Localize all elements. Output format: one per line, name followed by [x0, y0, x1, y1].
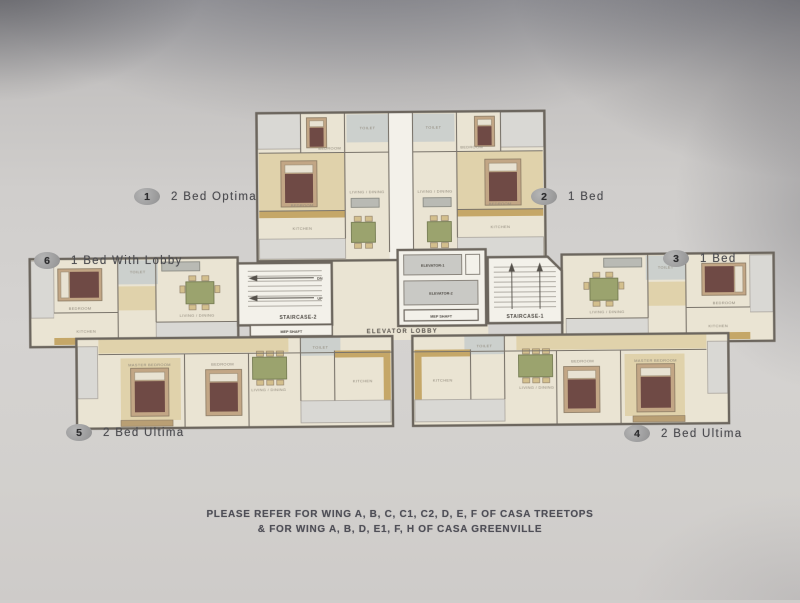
bed — [281, 161, 317, 207]
room-label-master-bedroom: MASTER BEDROOM — [128, 362, 171, 367]
dining-table — [518, 349, 552, 383]
stair-up-label: UP — [317, 297, 323, 301]
legend-label-5: 2 Bed Ultima — [103, 427, 184, 439]
room-label-living: LIVING / DINING — [418, 189, 453, 194]
bed — [485, 159, 521, 205]
stair-dn-label: DN — [317, 277, 323, 281]
room-label-bedroom: BEDROOM — [69, 306, 92, 311]
legend-item-2-bed-ultima-4: 4 2 Bed Ultima — [624, 425, 742, 442]
legend-item-2-bed-optima: 1 2 Bed Optima — [134, 188, 257, 205]
room-label-kitchen: KITCHEN — [76, 329, 96, 334]
legend-item-1-bed-3: 3 1 Bed — [663, 250, 737, 267]
room-label-living: LIVING / DINING — [180, 313, 215, 318]
elevator-core: ELEVATOR-1 ELEVATOR-2 MEP SHAFT — [398, 249, 487, 326]
bed — [702, 263, 746, 295]
legend-label-6: 1 Bed With Lobby — [71, 255, 183, 267]
room-label-bedroom: BEDROOM — [211, 361, 234, 366]
staircase-1: STAIRCASE-1 — [488, 257, 563, 324]
legend-label-4: 2 Bed Ultima — [661, 428, 742, 440]
room-label-kitchen: KITCHEN — [708, 323, 728, 328]
bed — [637, 364, 675, 412]
legend-label-2: 1 Bed — [568, 191, 605, 203]
room-label-living: LIVING / DINING — [251, 387, 286, 392]
room-label-toilet: TOILET — [477, 343, 493, 348]
room-label-kitchen: KITCHEN — [433, 378, 453, 383]
legend-label-3: 1 Bed — [700, 253, 737, 265]
top-units: BEDROOM BEDROOM BEDROOM BEDROOM KITCHEN … — [256, 111, 545, 262]
room-label-toilet: TOILET — [360, 125, 376, 130]
room-label-bedroom: BEDROOM — [489, 201, 512, 206]
room-label-living: LIVING / DINING — [519, 385, 554, 390]
dining-table — [252, 351, 286, 385]
legend-item-1-bed-2: 2 1 Bed — [531, 188, 605, 205]
mep-shaft-label: MEP SHAFT — [430, 315, 453, 319]
room-label-bedroom: BEDROOM — [460, 144, 483, 149]
legend-badge-2: 2 — [531, 188, 557, 205]
wing-left-1bed-lobby: BEDROOM KITCHEN LIVING / DINING TOILET — [30, 257, 239, 347]
bottom-wing-right-2bed-ultima: MASTER BEDROOM BEDROOM LIVING / DINING K… — [412, 333, 729, 426]
wardrobe — [633, 416, 685, 422]
staircase-2: DN UP STAIRCASE-2 MEP SHAFT — [238, 263, 333, 337]
legend-item-1-bed-with-lobby: 6 1 Bed With Lobby — [34, 252, 183, 269]
legend-badge-4: 4 — [624, 425, 650, 442]
staircase-2-label: STAIRCASE-2 — [279, 315, 316, 321]
bed — [306, 118, 326, 148]
footer-line-1: PLEASE REFER FOR WING A, B, C, C1, C2, D… — [0, 508, 800, 523]
room-label-toilet: TOILET — [130, 269, 146, 274]
staircase-1-label: STAIRCASE-1 — [506, 314, 543, 320]
room-label-kitchen: KITCHEN — [491, 224, 511, 229]
bed — [58, 269, 102, 301]
room-label-living: LIVING / DINING — [350, 189, 385, 194]
room-label-living: LIVING / DINING — [590, 309, 625, 314]
room-label-kitchen: KITCHEN — [293, 226, 313, 231]
room-label-bedroom: BEDROOM — [713, 300, 736, 305]
footer-note: PLEASE REFER FOR WING A, B, C, C1, C2, D… — [0, 508, 800, 537]
sofa — [423, 198, 451, 207]
room-label-toilet: TOILET — [313, 345, 329, 350]
bed — [131, 368, 169, 416]
legend-item-2-bed-ultima-5: 5 2 Bed Ultima — [66, 424, 184, 441]
room-label-bedroom: BEDROOM — [291, 203, 314, 208]
room-label-bedroom: BEDROOM — [318, 146, 341, 151]
elevator-lobby-label: ELEVATOR LOBBY — [367, 329, 438, 336]
bottom-wing-left-2bed-ultima: MASTER BEDROOM BEDROOM LIVING / DINING K… — [76, 336, 393, 429]
legend-badge-6: 6 — [34, 252, 60, 269]
sofa — [604, 258, 642, 267]
room-label-toilet: TOILET — [426, 125, 442, 130]
legend-label-1: 2 Bed Optima — [171, 191, 257, 203]
bed — [474, 116, 494, 146]
room-label-master-bedroom: MASTER BEDROOM — [634, 358, 677, 363]
elevator-1-label: ELEVATOR-1 — [421, 264, 444, 268]
legend-badge-3: 3 — [663, 250, 689, 267]
legend-badge-1: 1 — [134, 188, 160, 205]
bed — [206, 369, 242, 415]
bed — [564, 366, 600, 412]
room-label-kitchen: KITCHEN — [353, 378, 373, 383]
mep-shaft-label: MEP SHAFT — [280, 330, 303, 334]
elevator-2-label: ELEVATOR-2 — [429, 292, 452, 296]
sofa — [351, 198, 379, 207]
footer-line-2: & FOR WING A, B, D, E1, F, H OF CASA GRE… — [0, 523, 800, 538]
room-label-bedroom: BEDROOM — [571, 358, 594, 363]
legend-badge-5: 5 — [66, 424, 92, 441]
